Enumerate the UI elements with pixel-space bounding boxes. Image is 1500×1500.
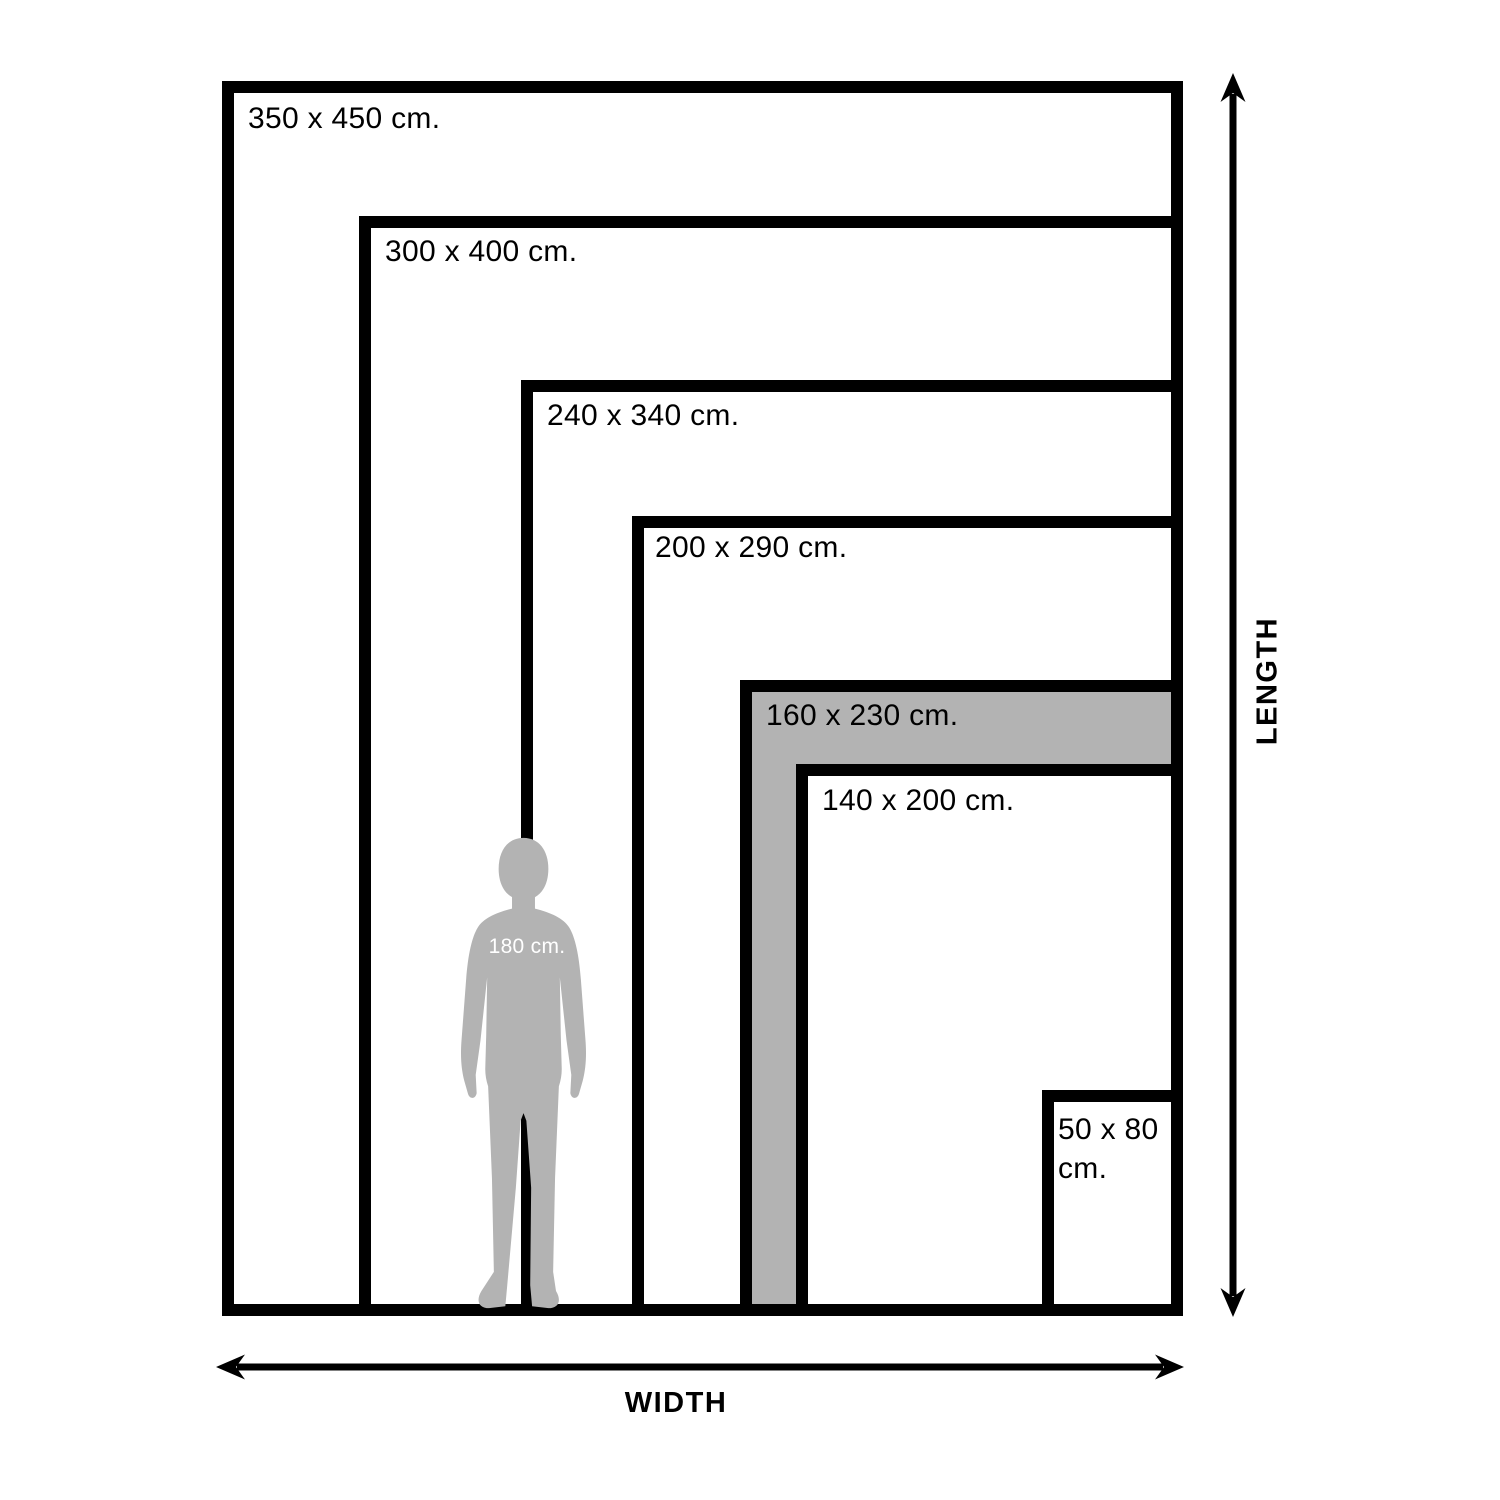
size-label-350x450: 350 x 450 cm. [248, 104, 440, 134]
person-silhouette [447, 834, 600, 1312]
size-label-200x290: 200 x 290 cm. [655, 533, 847, 563]
size-label-140x200: 140 x 200 cm. [822, 786, 1014, 816]
person-head [499, 838, 549, 900]
size-label-160x230: 160 x 230 cm. [766, 701, 958, 731]
size-label-50x80: 50 x 80 cm. [1058, 1110, 1170, 1188]
size-label-300x400: 300 x 400 cm. [385, 237, 577, 267]
size-label-240x340: 240 x 340 cm. [547, 401, 739, 431]
person-height-label: 180 cm. [447, 936, 607, 957]
length-axis-label: LENGTH [1254, 617, 1283, 745]
width-axis-label: WIDTH [476, 1389, 876, 1418]
length-axis-arrow-icon [1220, 72, 1246, 1318]
width-axis-arrow-icon [215, 1354, 1185, 1380]
